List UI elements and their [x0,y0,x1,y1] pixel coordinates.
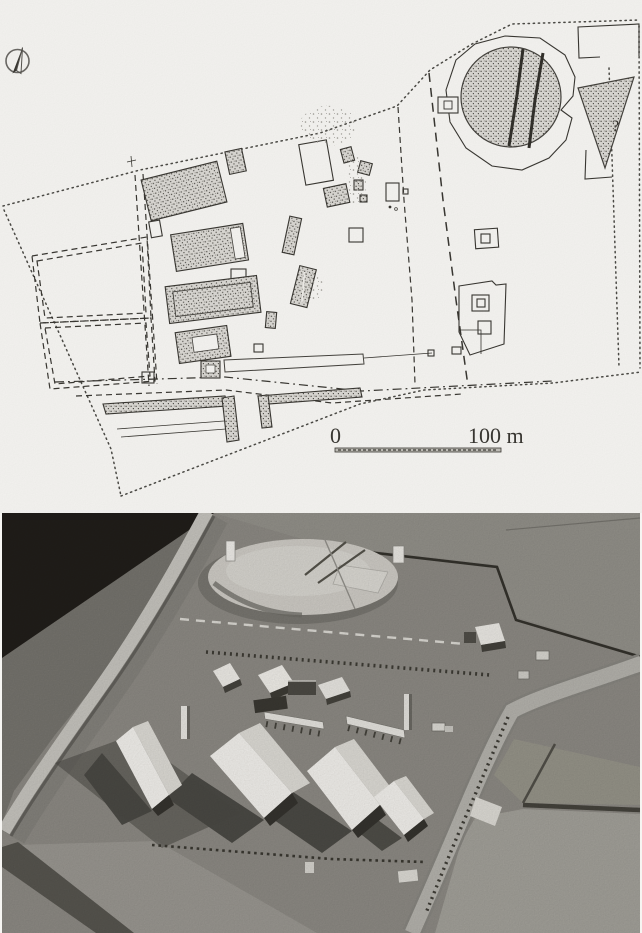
photo-grain [2,513,640,933]
model-photo-panel [2,513,640,933]
model-photograph [2,513,640,933]
scanned-figure-page: ? 0 100 m [0,0,642,933]
site-plan-panel: ? 0 100 m [0,0,642,513]
plan-scan-grain [0,0,642,513]
site-plan-drawing: ? 0 100 m [0,0,642,513]
